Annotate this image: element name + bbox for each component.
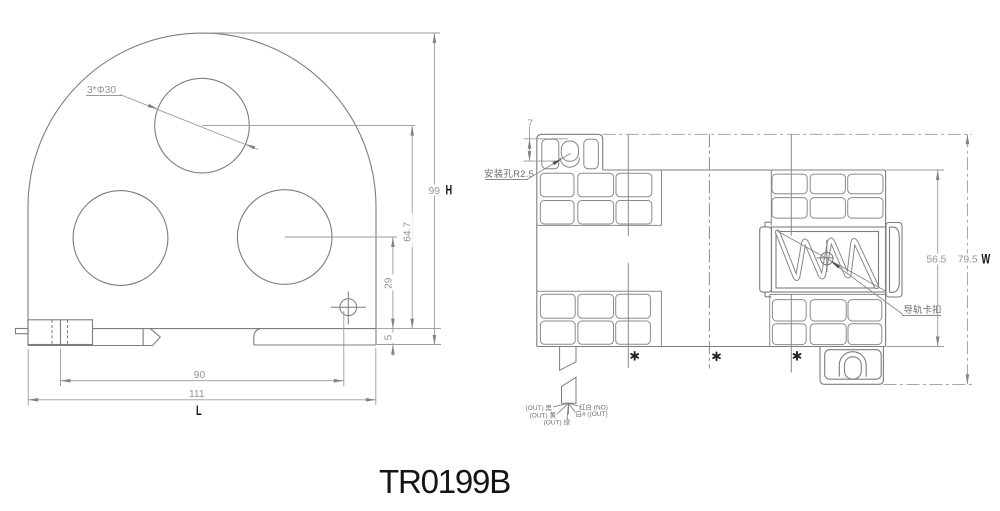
- svg-text:安装孔R2.5: 安装孔R2.5: [484, 168, 534, 180]
- svg-text:99: 99: [429, 186, 441, 197]
- svg-text:TR0199B: TR0199B: [379, 463, 510, 500]
- svg-text:(OUT) 黄: (OUT) 黄: [530, 411, 557, 420]
- svg-text:64.7: 64.7: [403, 222, 414, 242]
- svg-text:111: 111: [189, 389, 205, 400]
- svg-text:(OUT) 绿: (OUT) 绿: [544, 418, 571, 427]
- svg-text:79.5: 79.5: [958, 255, 978, 266]
- svg-text:90: 90: [194, 370, 206, 381]
- svg-text:29: 29: [384, 277, 395, 289]
- svg-text:白# ((OUT): 白# ((OUT): [576, 409, 608, 418]
- svg-text:5: 5: [384, 334, 395, 340]
- svg-text:W: W: [982, 253, 991, 267]
- svg-text:导轨卡扣: 导轨卡扣: [904, 304, 942, 316]
- svg-text:(OUT) 黑: (OUT) 黑: [526, 404, 553, 412]
- svg-text:3*Φ30: 3*Φ30: [87, 85, 116, 96]
- svg-text:L: L: [196, 404, 202, 418]
- svg-text:H: H: [446, 184, 453, 198]
- svg-text:7: 7: [527, 119, 533, 130]
- svg-text:56.5: 56.5: [927, 254, 947, 265]
